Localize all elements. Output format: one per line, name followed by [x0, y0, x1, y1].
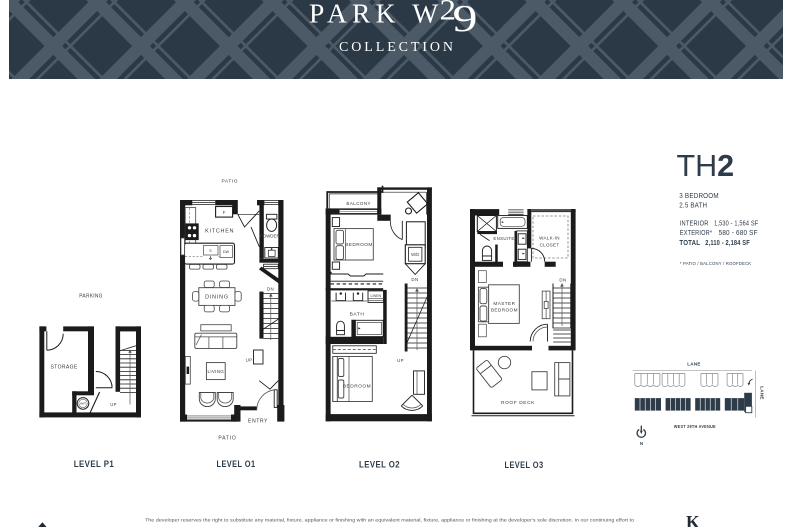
svg-text:ENSUITE: ENSUITE	[493, 236, 514, 241]
svg-text:DN: DN	[559, 278, 566, 283]
svg-text:DW: DW	[223, 250, 230, 254]
svg-text:PARK W: PARK W	[309, 0, 443, 29]
svg-text:DN: DN	[411, 277, 418, 282]
svg-text:LEVEL O1: LEVEL O1	[217, 459, 256, 469]
svg-text:BEDROOM: BEDROOM	[491, 307, 518, 312]
svg-text:* PATIO / BALCONY / ROOFDECK: * PATIO / BALCONY / ROOFDECK	[680, 261, 752, 266]
svg-text:BEDROOM: BEDROOM	[343, 383, 371, 389]
svg-text:F: F	[223, 210, 226, 215]
svg-text:PATIO: PATIO	[221, 178, 238, 184]
svg-text:WALK-IN: WALK-IN	[539, 236, 560, 241]
svg-text:N: N	[640, 441, 643, 446]
svg-text:TOTAL: TOTAL	[679, 240, 700, 247]
svg-text:PARKING: PARKING	[79, 293, 103, 299]
svg-text:2.5 BATH: 2.5 BATH	[679, 202, 707, 209]
svg-text:ROOF DECK: ROOF DECK	[501, 400, 535, 406]
svg-text:LINEN: LINEN	[371, 294, 382, 298]
svg-text:DN: DN	[267, 287, 274, 292]
svg-text:9: 9	[453, 0, 478, 40]
svg-text:K: K	[686, 512, 700, 527]
svg-text:TH2: TH2	[677, 149, 735, 183]
svg-text:EXTERIOR*: EXTERIOR*	[680, 230, 712, 237]
svg-text:LIVING: LIVING	[208, 369, 225, 375]
svg-text:3 BEDROOM: 3 BEDROOM	[679, 193, 719, 200]
svg-text:INTERIOR: INTERIOR	[680, 221, 709, 228]
svg-text:BATH: BATH	[350, 311, 365, 317]
svg-text:580 - 680 SF: 580 - 680 SF	[719, 230, 758, 237]
svg-text:2,110 - 2,184 SF: 2,110 - 2,184 SF	[705, 240, 750, 247]
svg-text:BALCONY: BALCONY	[346, 201, 371, 206]
svg-text:LEVEL O3: LEVEL O3	[505, 460, 544, 470]
svg-text:1,530 - 1,564 SF: 1,530 - 1,564 SF	[714, 221, 758, 228]
svg-text:MASTER: MASTER	[493, 301, 515, 306]
svg-text:UP: UP	[110, 402, 116, 407]
svg-text:The developer reserves the rig: The developer reserves the right to subs…	[145, 517, 635, 522]
svg-text:UP: UP	[246, 358, 253, 363]
svg-text:CLOSET: CLOSET	[540, 242, 560, 247]
svg-text:LEVEL O2: LEVEL O2	[359, 460, 400, 470]
svg-text:HWT: HWT	[80, 402, 86, 406]
svg-text:UP: UP	[397, 358, 404, 363]
svg-text:W/D: W/D	[411, 252, 419, 257]
svg-text:DINING: DINING	[205, 295, 229, 301]
svg-text:LANE: LANE	[759, 386, 765, 400]
svg-text:BEDROOM: BEDROOM	[345, 242, 373, 248]
svg-text:POWDER: POWDER	[260, 234, 280, 239]
svg-text:COLLECTION: COLLECTION	[339, 40, 456, 55]
svg-text:LEVEL P1: LEVEL P1	[74, 459, 115, 469]
svg-text:ENTRY: ENTRY	[248, 419, 268, 425]
svg-text:STORAGE: STORAGE	[51, 364, 78, 370]
svg-text:LANE: LANE	[687, 361, 701, 367]
svg-text:PATIO: PATIO	[218, 436, 236, 442]
svg-text:WEST 29TH AVENUE: WEST 29TH AVENUE	[674, 424, 716, 430]
svg-text:KITCHEN: KITCHEN	[205, 228, 234, 234]
